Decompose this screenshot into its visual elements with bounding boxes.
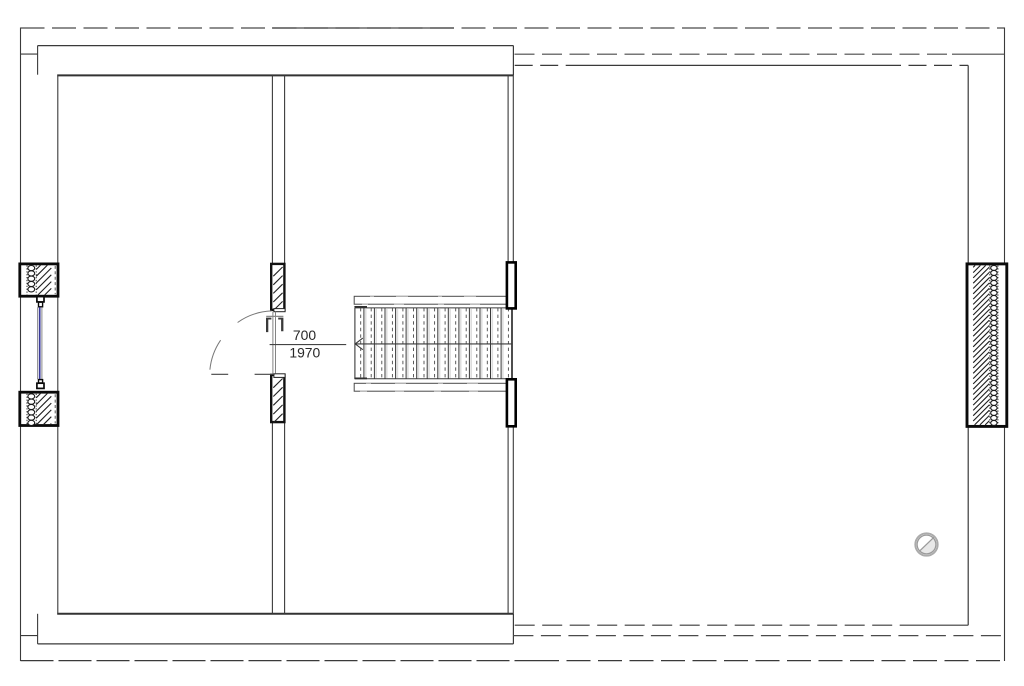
- svg-text:700: 700: [293, 327, 316, 343]
- svg-text:1970: 1970: [289, 344, 320, 360]
